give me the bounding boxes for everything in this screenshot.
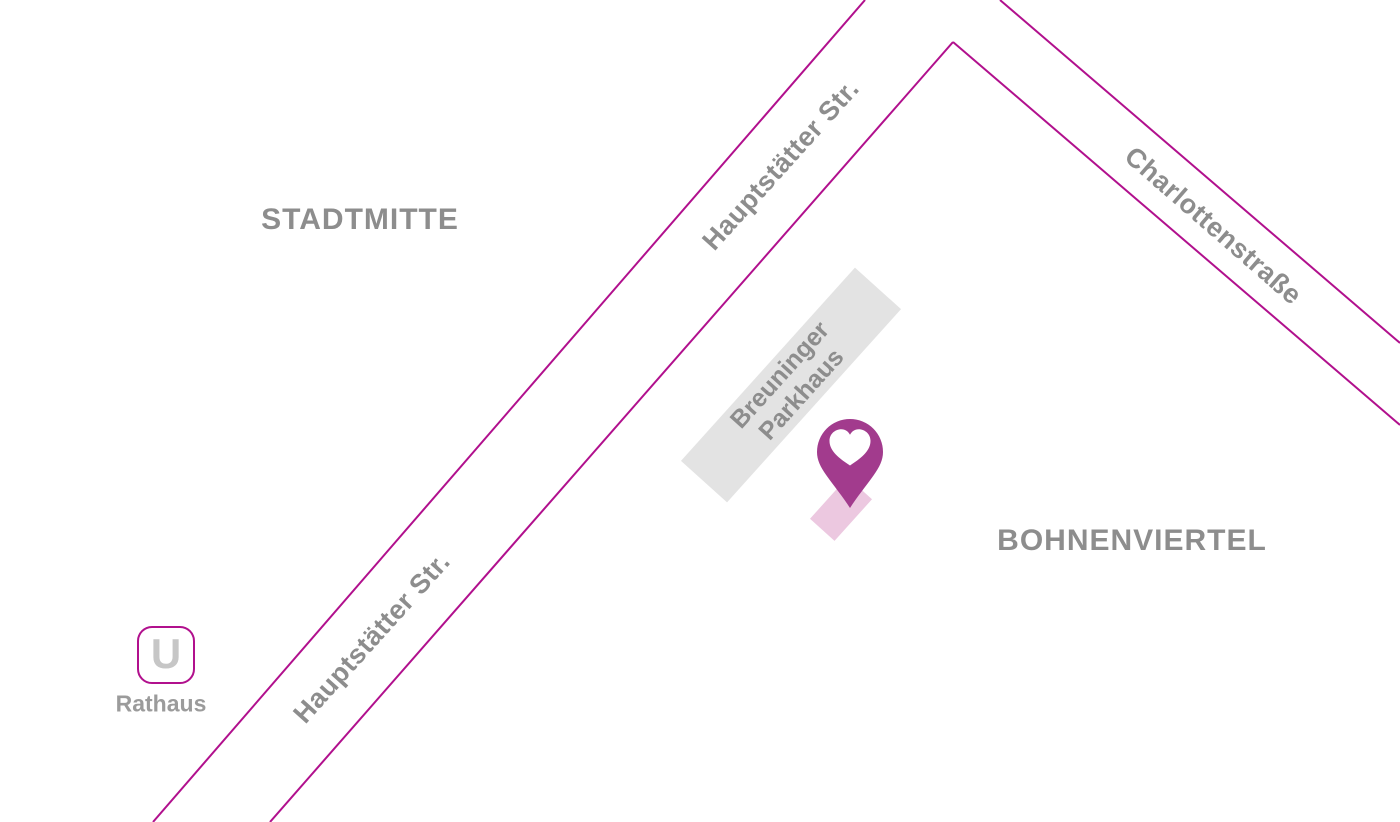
area-label-bohnenviertel: BOHNENVIERTEL [997, 524, 1267, 558]
map-canvas: Breuninger Parkhaus STADTMITTE BOHNENVIE… [0, 0, 1400, 822]
station-label-rathaus: Rathaus [116, 691, 207, 718]
area-label-stadtmitte: STADTMITTE [261, 203, 459, 237]
ubahn-symbol: U [151, 633, 181, 678]
location-pin-icon[interactable] [810, 412, 890, 512]
street-lines-layer [0, 0, 1400, 822]
ubahn-station-icon[interactable]: U [137, 626, 195, 684]
charlottenstrasse-street-line-inner [953, 42, 1400, 425]
charlottenstrasse-street-line-outer [1000, 0, 1400, 343]
